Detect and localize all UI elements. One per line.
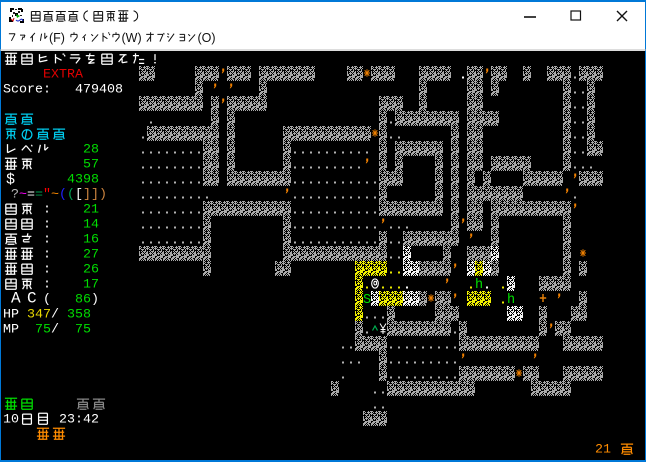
svg-text:]: ] — [83, 188, 91, 203]
svg-text:): ) — [99, 188, 107, 203]
svg-text:): ) — [91, 293, 99, 308]
svg-text:?: ? — [11, 188, 19, 203]
svg-text:479408: 479408 — [75, 83, 123, 98]
svg-text:27: 27 — [83, 248, 99, 263]
svg-text:(: ( — [67, 188, 75, 203]
svg-text:=: = — [35, 188, 43, 203]
svg-text:EXTRA: EXTRA — [43, 68, 83, 83]
svg-text:h: h — [475, 278, 483, 293]
svg-text:21: 21 — [595, 443, 611, 458]
svg-text:=: = — [27, 188, 35, 203]
svg-text:S: S — [363, 293, 371, 308]
svg-text::: : — [43, 248, 51, 263]
svg-text:4398: 4398 — [67, 173, 99, 188]
svg-text:10: 10 — [3, 413, 19, 428]
svg-text:347: 347 — [27, 308, 51, 323]
svg-text:28: 28 — [83, 143, 99, 158]
svg-text:(W): (W) — [122, 31, 142, 45]
svg-text:/: / — [51, 308, 59, 323]
svg-text::: : — [43, 278, 51, 293]
svg-text:C: C — [27, 290, 37, 308]
svg-text:(F): (F) — [49, 31, 65, 45]
svg-text:/: / — [51, 323, 59, 338]
svg-text:~: ~ — [51, 188, 59, 203]
svg-text:(: ( — [59, 188, 67, 203]
svg-text:16: 16 — [83, 233, 99, 248]
svg-text:21: 21 — [83, 203, 99, 218]
svg-text:86: 86 — [75, 293, 91, 308]
svg-text:57: 57 — [83, 158, 99, 173]
svg-text::: : — [43, 218, 51, 233]
svg-text::: : — [43, 263, 51, 278]
svg-text:(O): (O) — [198, 31, 216, 45]
svg-text:Score:: Score: — [3, 83, 51, 98]
svg-text:]: ] — [91, 188, 99, 203]
svg-text:75: 75 — [75, 323, 91, 338]
svg-text:~: ~ — [19, 188, 27, 203]
svg-text:17: 17 — [83, 278, 99, 293]
svg-text:14: 14 — [83, 218, 99, 233]
svg-text:(: ( — [43, 293, 51, 308]
svg-text:HP: HP — [3, 308, 19, 323]
svg-text::: : — [43, 233, 51, 248]
svg-text:26: 26 — [83, 263, 99, 278]
svg-text:A: A — [11, 290, 21, 308]
svg-text:[: [ — [75, 188, 83, 203]
svg-text:358: 358 — [67, 308, 91, 323]
svg-text:h: h — [507, 293, 515, 308]
svg-text:75: 75 — [35, 323, 51, 338]
svg-text:$: $ — [6, 172, 15, 189]
svg-text:23:42: 23:42 — [59, 413, 99, 428]
svg-text::: : — [43, 203, 51, 218]
svg-text:MP: MP — [3, 323, 19, 338]
svg-text:": " — [43, 188, 51, 203]
